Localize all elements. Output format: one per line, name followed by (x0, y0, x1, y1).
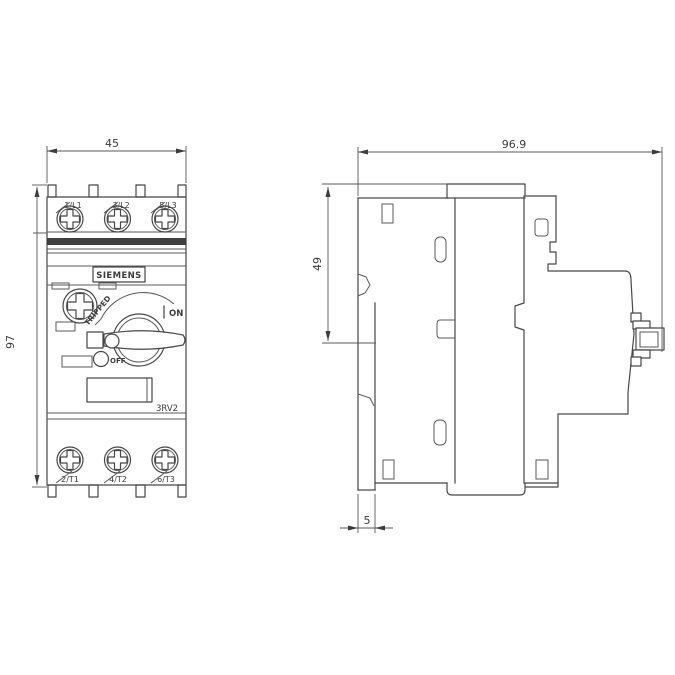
reset-window (62, 356, 92, 367)
terminal-screw-bottom-1 (57, 447, 83, 473)
front-top-tab (178, 185, 186, 197)
side-slot (434, 420, 446, 445)
dim-rail-offset: 5 (340, 494, 393, 533)
front-top-tab (136, 185, 145, 197)
brand-label: SIEMENS (96, 271, 141, 281)
panel-window (56, 322, 75, 331)
front-view: SIEMENS 1/L1 3/L2 5/L3 (33, 185, 186, 497)
dim-label-96-9: 96.9 (502, 138, 527, 151)
dim-front-width: 45 (47, 137, 186, 183)
terminal-screw-top-2 (105, 206, 131, 232)
side-slot (535, 219, 548, 236)
knob-pivot (105, 334, 119, 348)
din-clip-upper (358, 274, 370, 296)
side-slot (435, 237, 446, 262)
dim-label-49: 49 (311, 257, 324, 271)
terminal-screw-top-1 (57, 206, 83, 232)
dimension-drawing: SIEMENS 1/L1 3/L2 5/L3 (0, 0, 675, 675)
dim-side-upper: 49 (311, 184, 447, 343)
front-bottom-tab (136, 485, 145, 497)
front-bottom-tab (48, 485, 56, 497)
terminal-screw-bottom-3 (152, 447, 178, 473)
dim-side-depth: 96.9 (358, 138, 662, 352)
rating-window (87, 378, 152, 402)
on-label: ON (169, 309, 183, 319)
terminal-label-4T2: 4/T2 (109, 475, 127, 484)
panel-window (99, 283, 116, 289)
dim-label-5: 5 (364, 514, 371, 527)
dim-front-height: 97 (4, 185, 47, 487)
rotary-knob (87, 314, 185, 366)
dimension-drawing-page: SIEMENS 1/L1 3/L2 5/L3 (0, 0, 675, 675)
side-slot (382, 204, 393, 223)
side-slot (536, 460, 548, 479)
panel-window (52, 283, 69, 289)
front-top-tab (89, 185, 98, 197)
off-label: OFF (110, 357, 126, 365)
dim-label-97: 97 (4, 335, 17, 349)
side-knob-protrusion (631, 313, 664, 366)
front-bottom-tab (89, 485, 98, 497)
side-bottom-block (447, 483, 525, 495)
front-bottom-tab (178, 485, 186, 497)
din-clip-lower (358, 394, 374, 406)
side-latch-tab (437, 320, 455, 338)
dim-label-45: 45 (105, 137, 119, 150)
terminal-screw-bottom-2 (105, 447, 131, 473)
side-front-profile (526, 196, 634, 487)
tripped-arc (101, 293, 174, 319)
front-top-tab (48, 185, 56, 197)
knob-lever-end (87, 332, 103, 348)
side-top-step (447, 184, 556, 198)
off-symbol-circle (94, 352, 109, 367)
side-slot (383, 460, 394, 479)
front-dark-band (47, 238, 186, 245)
model-label: 3RV2 (156, 404, 178, 414)
terminal-label-2T1: 2/T1 (61, 475, 79, 484)
side-module-line (515, 196, 524, 483)
side-view (358, 184, 664, 495)
terminal-screw-top-3 (152, 206, 178, 232)
